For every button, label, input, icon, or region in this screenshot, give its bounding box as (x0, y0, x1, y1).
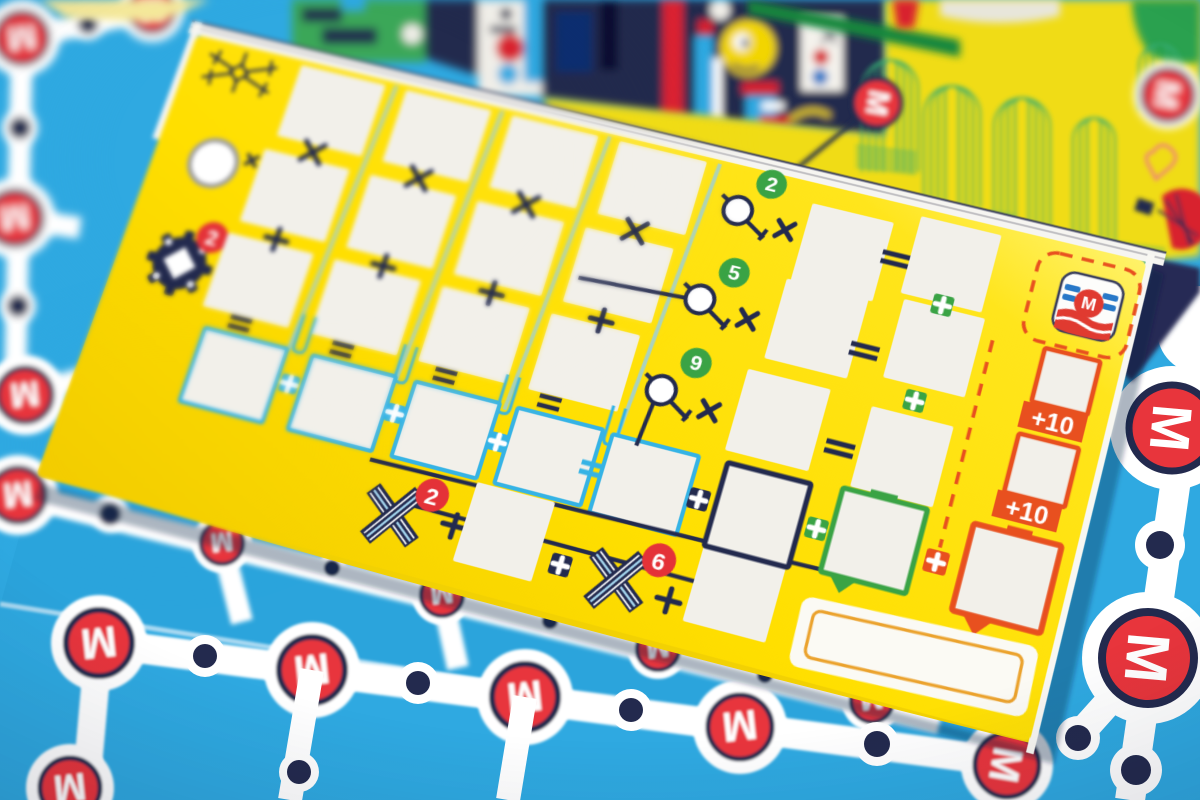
svg-text:M: M (6, 17, 38, 58)
svg-text:M: M (1138, 402, 1200, 454)
svg-text:M: M (1111, 630, 1182, 686)
svg-text:M: M (720, 701, 760, 751)
svg-text:M: M (0, 196, 31, 238)
svg-text:M: M (51, 764, 88, 800)
svg-text:M: M (8, 373, 41, 415)
svg-text:M: M (79, 616, 120, 667)
